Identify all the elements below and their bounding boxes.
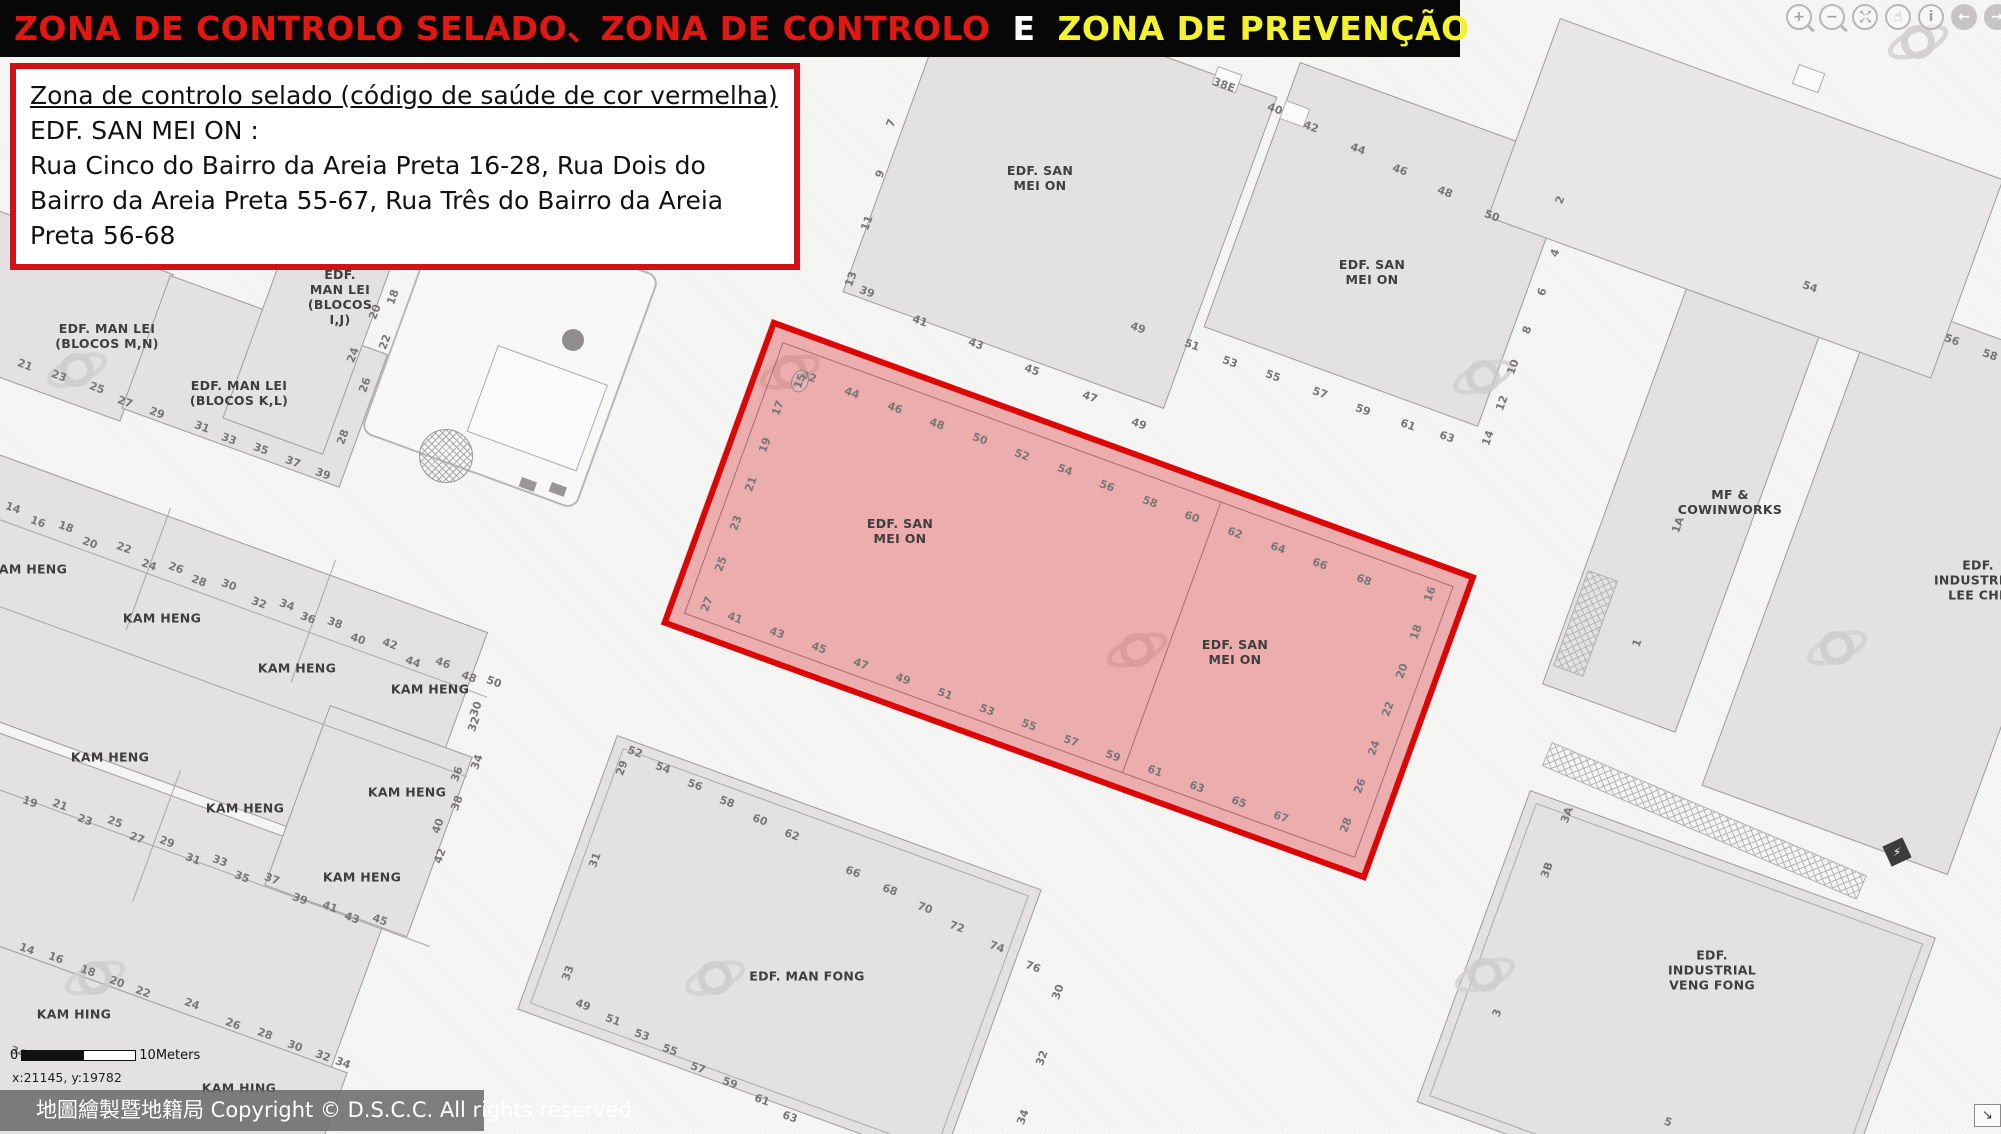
- next-extent-icon[interactable]: →: [1984, 4, 2001, 30]
- building-label: MF & COWINWORKS: [1678, 487, 1782, 517]
- overview-toggle-button[interactable]: ↘: [1974, 1104, 2001, 1127]
- zoom-out-icon[interactable]: −: [1819, 4, 1845, 30]
- previous-extent-icon[interactable]: ←: [1951, 4, 1977, 30]
- zone-info-heading: Zona de controlo selado (código de saúde…: [30, 78, 780, 113]
- zone-info-address-line: Preta 56-68: [30, 218, 780, 253]
- building-label: KAM HENG: [258, 661, 336, 676]
- scale-distance-label: 10Meters: [139, 1048, 200, 1063]
- house-number: 18: [384, 288, 401, 307]
- scale-zero-label: 0: [10, 1048, 18, 1063]
- house-number: 4: [1548, 247, 1563, 259]
- house-number: 55: [1264, 367, 1283, 384]
- house-number: 32: [1033, 1049, 1050, 1068]
- zone-info-address-line: Rua Cinco do Bairro da Areia Preta 16-28…: [30, 148, 780, 183]
- house-number: 7: [884, 117, 899, 129]
- building-label: EDF. SAN MEI ON: [867, 516, 933, 546]
- house-number: 34: [1014, 1108, 1031, 1127]
- house-number: 59: [1354, 401, 1373, 418]
- building-label: EDF. INDUSTRIAL VENG FONG: [1668, 948, 1756, 993]
- survey-marker-icon: [1467, 957, 1503, 993]
- playground-hatch: [419, 429, 473, 483]
- building-label: KAM HENG: [323, 870, 401, 885]
- house-number: 30: [1049, 983, 1066, 1002]
- house-number: 12: [1493, 394, 1510, 413]
- building-label: EDF. MAN LEI (BLOCOS I,J): [308, 267, 372, 327]
- building-label: EDF. INDUSTRIAL LEE CHE: [1934, 558, 2001, 603]
- building-label: KAM HING: [37, 1007, 111, 1022]
- house-number: 9: [873, 168, 888, 180]
- zone-info-building: EDF. SAN MEI ON :: [30, 113, 780, 148]
- building-label: EDF. MAN LEI (BLOCOS M,N): [55, 321, 159, 351]
- copyright-bar: 地圖繪製暨地籍局 Copyright © D.S.C.C. All rights…: [0, 1090, 484, 1131]
- house-number: 14: [1479, 429, 1496, 448]
- scale-bar-graphic: [21, 1050, 136, 1061]
- full-extent-icon[interactable]: ↖↗↙↘: [1852, 4, 1878, 30]
- house-number: 45: [1023, 361, 1042, 378]
- pan-icon[interactable]: ☝: [1885, 4, 1911, 30]
- house-number: 49: [1130, 415, 1149, 432]
- title-red-text: ZONA DE CONTROLO SELADO、ZONA DE CONTROLO: [14, 9, 990, 48]
- zone-info-box: Zona de controlo selado (código de saúde…: [10, 63, 800, 270]
- house-number: 61: [1399, 416, 1418, 433]
- house-number: 63: [1438, 428, 1457, 445]
- building-label: EDF. SAN MEI ON: [1007, 163, 1073, 193]
- building-label: EDF. MAN LEI (BLOCOS K,L): [190, 378, 288, 408]
- map-application: ⚡ 79111339414345474938E40424446485049515…: [0, 0, 2001, 1134]
- building-label: EDF. MAN FONG: [749, 969, 864, 984]
- building-label: KAM HENG: [391, 682, 469, 697]
- survey-marker-icon: [697, 960, 733, 996]
- building-label: KAM HENG: [0, 562, 67, 577]
- coordinates-readout: x:21145, y:19782: [12, 1070, 122, 1085]
- building-label: KAM HENG: [71, 750, 149, 765]
- building-label: EDF. SAN MEI ON: [1339, 257, 1405, 287]
- survey-marker-icon: [1819, 630, 1855, 666]
- survey-marker-icon: [1465, 359, 1501, 395]
- house-number: 8: [1520, 324, 1535, 336]
- building-label: KAM HENG: [206, 801, 284, 816]
- parcel: [842, 0, 1277, 409]
- building-label: KAM HENG: [368, 785, 446, 800]
- tank-icon: [562, 329, 584, 351]
- building-label: EDF. SAN MEI ON: [1202, 637, 1268, 667]
- house-number: 6: [1535, 286, 1550, 298]
- zoom-in-icon[interactable]: +: [1786, 4, 1812, 30]
- house-number: 51: [1183, 336, 1202, 353]
- title-connector-text: E: [1012, 9, 1035, 48]
- house-number: 32: [465, 715, 482, 734]
- house-number: 50: [485, 673, 504, 690]
- zone-info-address-line: Bairro da Areia Preta 55-67, Rua Três do…: [30, 183, 780, 218]
- parcel: [517, 735, 1042, 1134]
- identify-icon[interactable]: i: [1918, 4, 1944, 30]
- title-yellow-text: ZONA DE PREVENÇÃO: [1058, 9, 1470, 48]
- title-banner: ZONA DE CONTROLO SELADO、ZONA DE CONTROLO…: [0, 0, 1460, 57]
- house-number: 57: [1311, 384, 1330, 401]
- house-number: 47: [1081, 388, 1100, 405]
- scale-bar: 0 10Meters: [10, 1048, 200, 1063]
- house-number: 53: [1221, 353, 1240, 370]
- building-label: KAM HENG: [123, 611, 201, 626]
- house-number: 76: [1024, 958, 1043, 975]
- map-toolbar: +−↖↗↙↘☝i←→: [1786, 4, 2001, 30]
